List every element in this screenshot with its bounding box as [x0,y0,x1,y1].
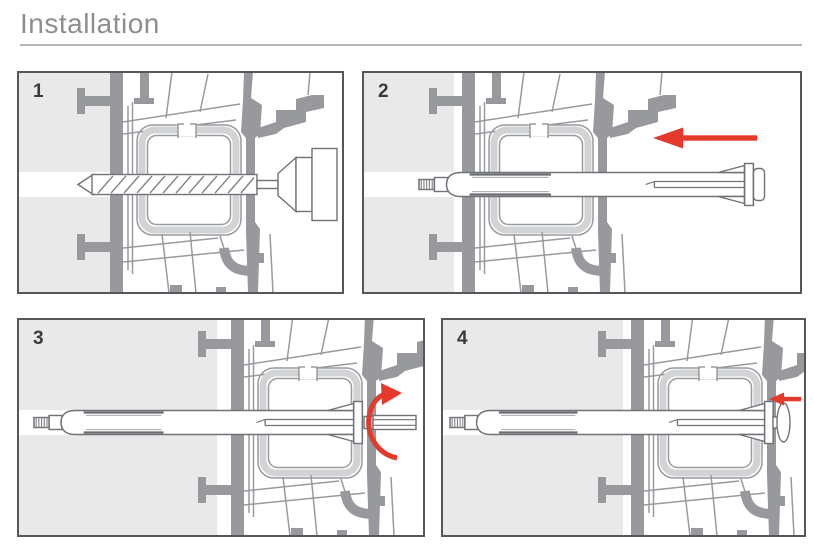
screwdriver-bit [364,416,416,430]
step-2-panel: 2 [362,71,802,294]
installation-instructions-page: Installation [0,0,814,544]
anchor-head-cap [754,169,765,201]
step-number: 1 [33,81,44,103]
step-1-panel: 1 [17,71,344,294]
step-number: 3 [33,328,44,350]
page-title: Installation [20,8,160,40]
step-number: 4 [457,328,468,350]
title-underline [20,44,802,46]
step-3-panel: 3 [17,318,425,537]
insert-arrow-icon [653,128,757,149]
step-4-panel: 4 [441,318,806,537]
step-number: 2 [378,81,389,103]
